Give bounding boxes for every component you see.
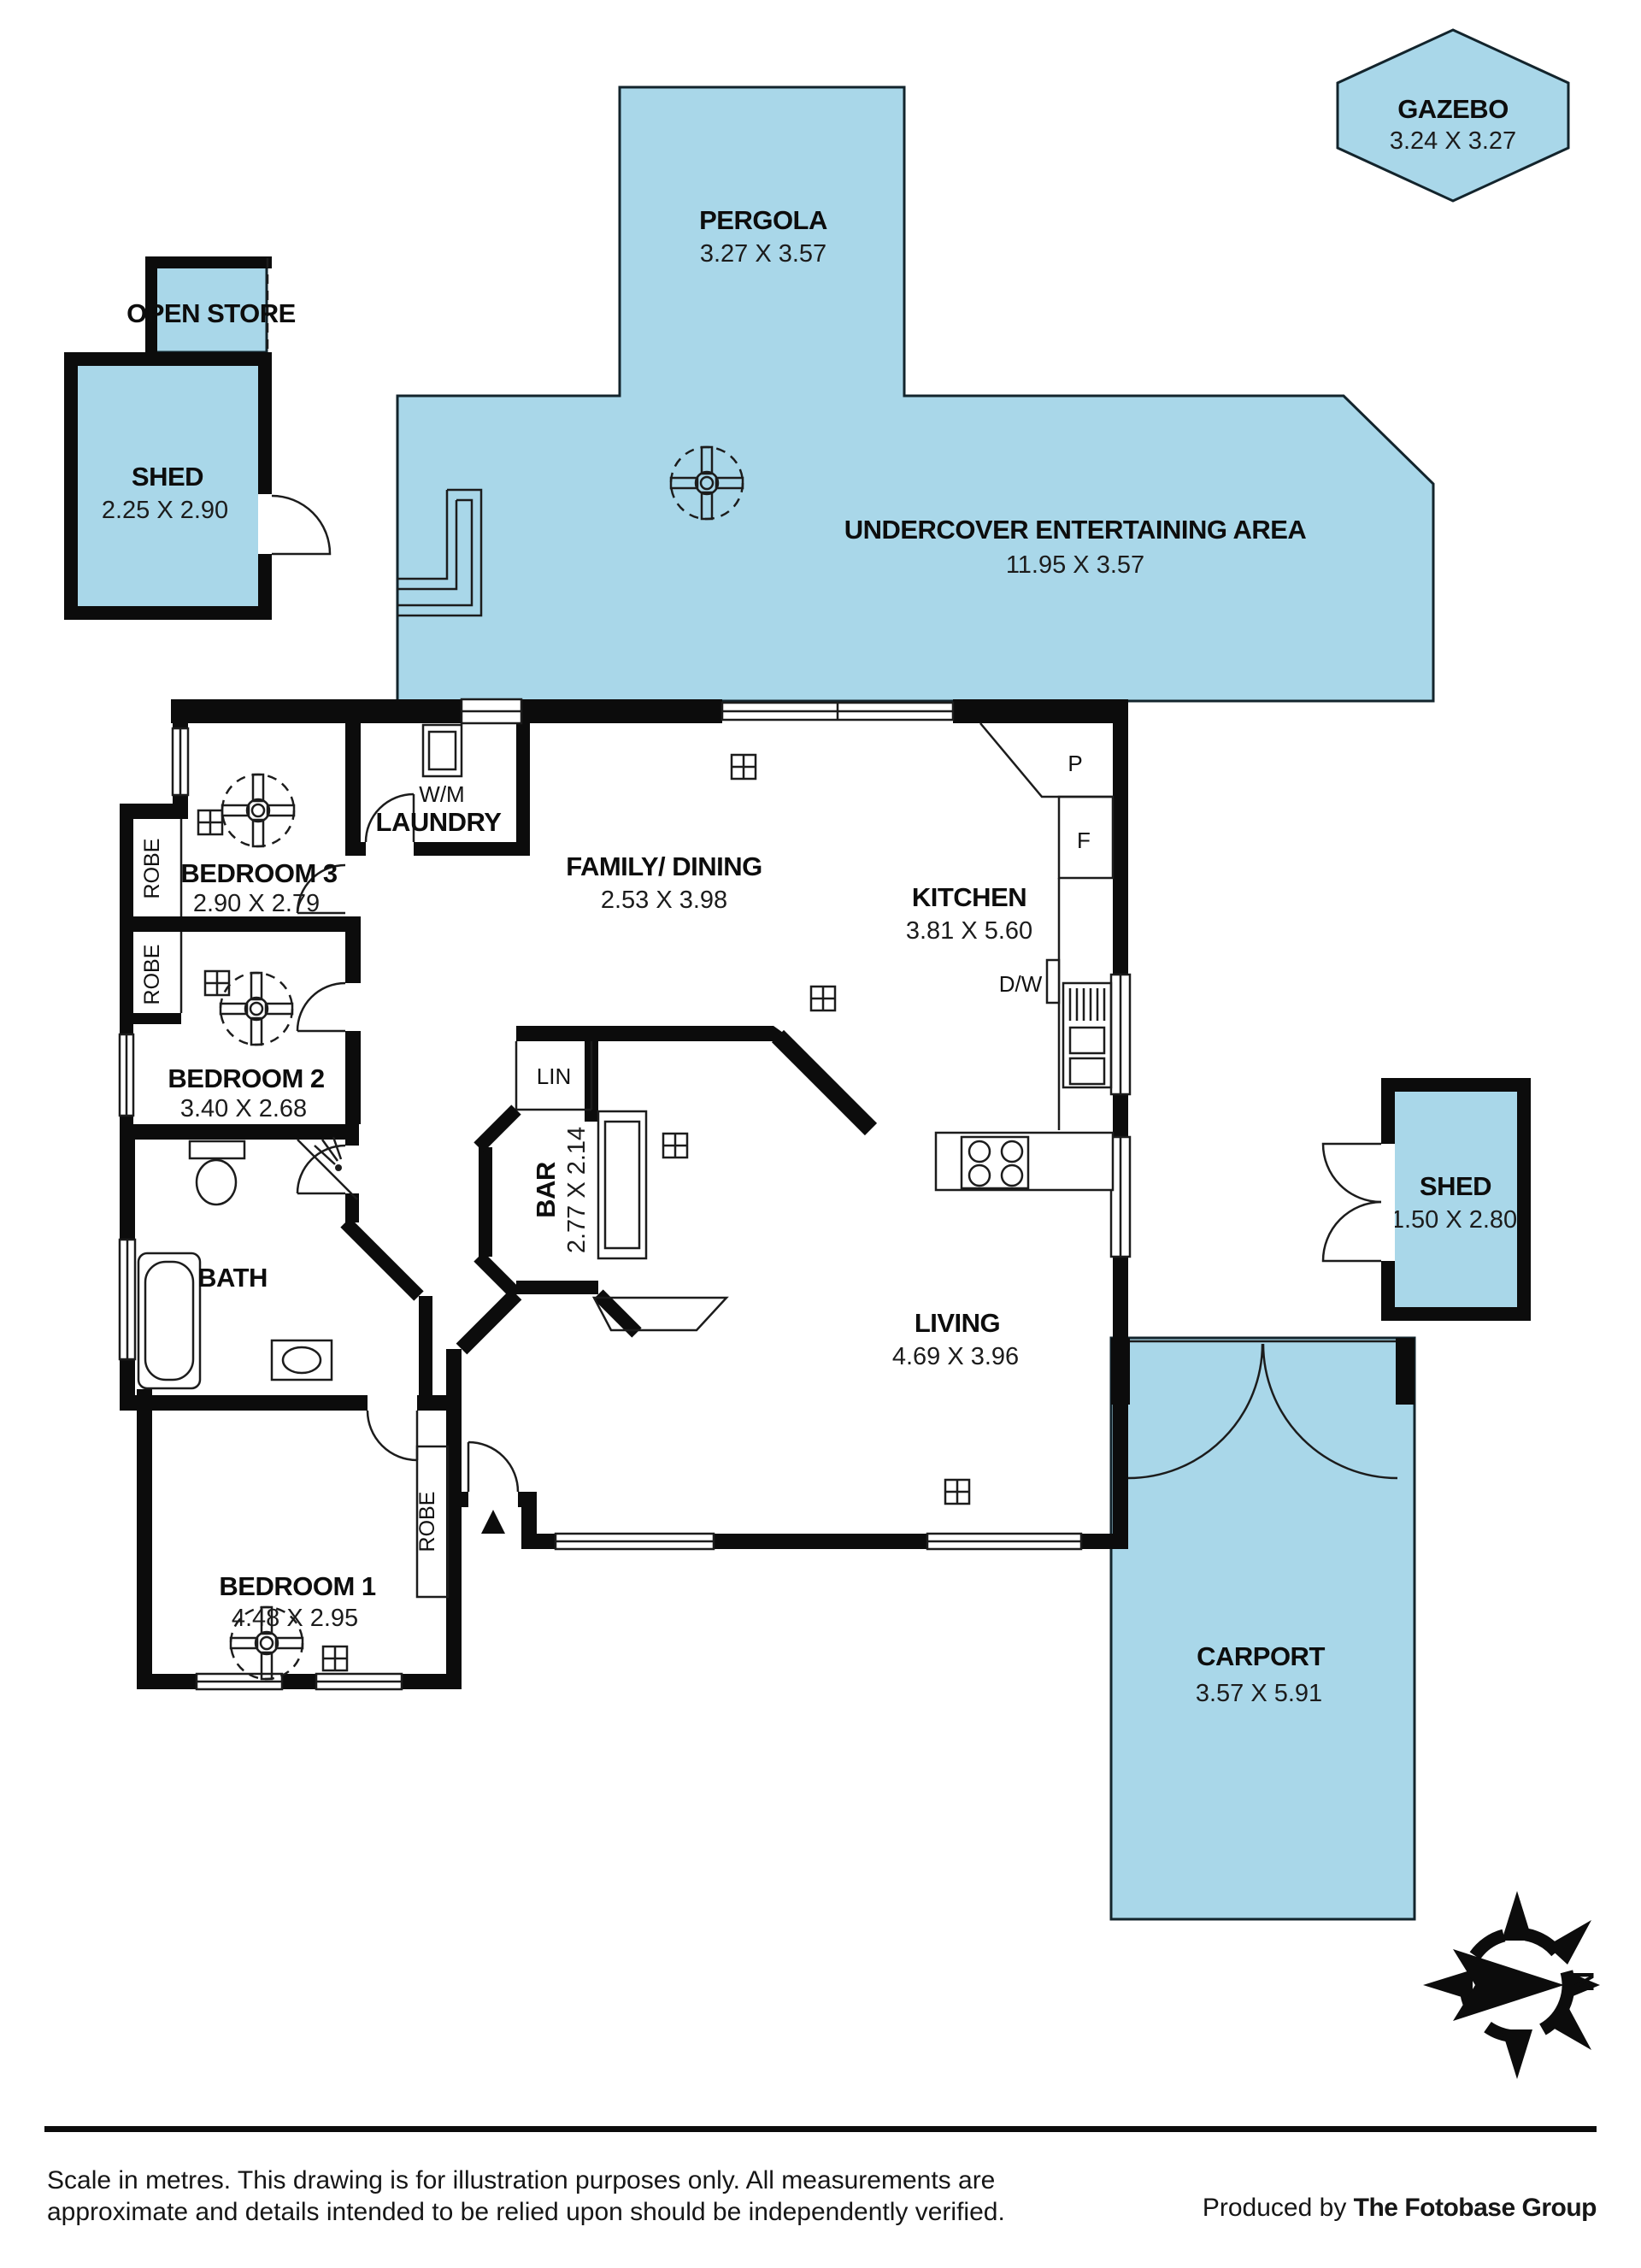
wm-label: W/M <box>419 781 464 807</box>
footer-credit: Produced by The Fotobase Group <box>1203 2194 1597 2222</box>
floor-plan-page: PERGOLA 3.27 X 3.57 UNDERCOVER ENTERTAIN… <box>0 0 1641 2268</box>
pergola-label: PERGOLA <box>699 205 827 235</box>
light-icon <box>732 755 756 779</box>
window <box>462 699 521 723</box>
ceiling-fan-icon <box>222 775 294 846</box>
robe-label: ROBE <box>140 839 164 899</box>
robe-label: ROBE <box>415 1492 439 1552</box>
bath-label: BATH <box>197 1263 268 1293</box>
footer-divider <box>44 2126 1597 2132</box>
gazebo-label: GAZEBO <box>1397 94 1509 124</box>
window <box>927 1534 1081 1549</box>
dishwasher-label: D/W <box>999 971 1043 997</box>
light-icon <box>323 1647 347 1670</box>
bar-dims: 2.77 X 2.14 <box>563 1127 591 1253</box>
ceiling-fan-icon <box>221 973 292 1045</box>
pergola-dims: 3.27 X 3.57 <box>700 240 826 268</box>
linen-label: LIN <box>537 1063 571 1089</box>
carport-area: CARPORT 3.57 X 5.91 <box>1111 1338 1415 1919</box>
bedroom2-label: BEDROOM 2 <box>168 1063 324 1093</box>
washing-machine <box>423 725 462 776</box>
compass-icon: N <box>1423 1891 1600 2079</box>
window <box>1111 1137 1130 1257</box>
bedroom3-label: BEDROOM 3 <box>180 858 338 888</box>
bar-counter <box>594 1111 726 1330</box>
family-dining-dims: 2.53 X 3.98 <box>601 887 727 914</box>
kitchen-label: KITCHEN <box>912 882 1026 912</box>
window <box>197 1674 282 1689</box>
carport-label: CARPORT <box>1197 1641 1325 1671</box>
shed-left-dims: 2.25 X 2.90 <box>102 497 228 524</box>
shed-left-area: SHED 2.25 X 2.90 <box>64 352 330 620</box>
bathtub <box>138 1253 200 1388</box>
bar-label: BAR <box>531 1162 561 1218</box>
laundry-label: LAUNDRY <box>376 807 503 837</box>
vanity-basin <box>272 1340 332 1380</box>
family-dining-label: FAMILY/ DINING <box>566 851 762 881</box>
footer-brand: The Fotobase Group <box>1354 2194 1597 2222</box>
window <box>1111 975 1130 1094</box>
light-icon <box>811 987 835 1010</box>
fridge-label: F <box>1077 828 1091 853</box>
shed-right-area: SHED 1.50 X 2.80 <box>1323 1078 1531 1321</box>
window <box>316 1674 402 1689</box>
shed-left-label: SHED <box>132 462 203 492</box>
window <box>120 1240 135 1359</box>
bedroom2-dims: 3.40 X 2.68 <box>180 1095 307 1122</box>
bedroom3-dims: 2.90 X 2.79 <box>193 890 320 917</box>
carport-post <box>1396 1338 1415 1405</box>
windows <box>120 699 1130 1689</box>
door-swing <box>368 1395 417 1460</box>
carport-dims: 3.57 X 5.91 <box>1196 1680 1322 1707</box>
toilet <box>190 1141 244 1205</box>
dishwasher <box>1047 960 1059 1003</box>
footer: Scale in metres. This drawing is for ill… <box>44 2126 1597 2226</box>
footer-disclaimer-line1: Scale in metres. This drawing is for ill… <box>47 2166 995 2194</box>
undercover-label: UNDERCOVER ENTERTAINING AREA <box>844 515 1307 545</box>
kitchen-dims: 3.81 X 5.60 <box>906 917 1032 945</box>
compass-north-label: N <box>1567 1971 1599 1993</box>
window <box>556 1534 714 1549</box>
window <box>120 1034 133 1116</box>
bedroom1-label: BEDROOM 1 <box>219 1571 376 1601</box>
kitchen-sink <box>1063 983 1111 1087</box>
undercover-pergola-area: PERGOLA 3.27 X 3.57 UNDERCOVER ENTERTAIN… <box>397 87 1433 701</box>
window <box>173 728 188 795</box>
footer-disclaimer-line2: approximate and details intended to be r… <box>47 2198 1005 2226</box>
light-icon <box>198 810 222 834</box>
robe-label: ROBE <box>140 945 164 1005</box>
shed-right-door-swing <box>1323 1144 1395 1261</box>
shed-left-door-swing <box>258 494 330 554</box>
gazebo-dims: 3.24 X 3.27 <box>1390 127 1516 155</box>
living-label: LIVING <box>915 1308 1000 1338</box>
undercover-dims: 11.95 X 3.57 <box>1006 551 1144 579</box>
footer-produced-by: Produced by <box>1203 2194 1354 2222</box>
door-swing <box>297 983 361 1031</box>
living-dims: 4.69 X 3.96 <box>892 1343 1019 1370</box>
open-store-area: OPEN STORE <box>126 256 296 352</box>
pantry-label: P <box>1068 751 1082 776</box>
room-labels: BEDROOM 3 2.90 X 2.79 BEDROOM 2 3.40 X 2… <box>140 751 1091 1632</box>
light-icon <box>945 1480 969 1504</box>
stove <box>936 1133 1113 1190</box>
entry-arrow-icon <box>481 1510 505 1534</box>
floor-plan-svg: PERGOLA 3.27 X 3.57 UNDERCOVER ENTERTAIN… <box>0 0 1641 2268</box>
open-store-label: OPEN STORE <box>126 298 296 328</box>
shed-right-label: SHED <box>1420 1171 1491 1201</box>
sliding-door <box>722 703 953 720</box>
bedroom1-dims: 4.48 X 2.95 <box>232 1605 358 1632</box>
gazebo-area: GAZEBO 3.24 X 3.27 <box>1338 30 1568 201</box>
corner-pantry <box>980 723 1113 797</box>
front-door-swing <box>468 1442 518 1507</box>
shed-right-dims: 1.50 X 2.80 <box>1391 1206 1517 1234</box>
light-icon <box>663 1134 687 1158</box>
